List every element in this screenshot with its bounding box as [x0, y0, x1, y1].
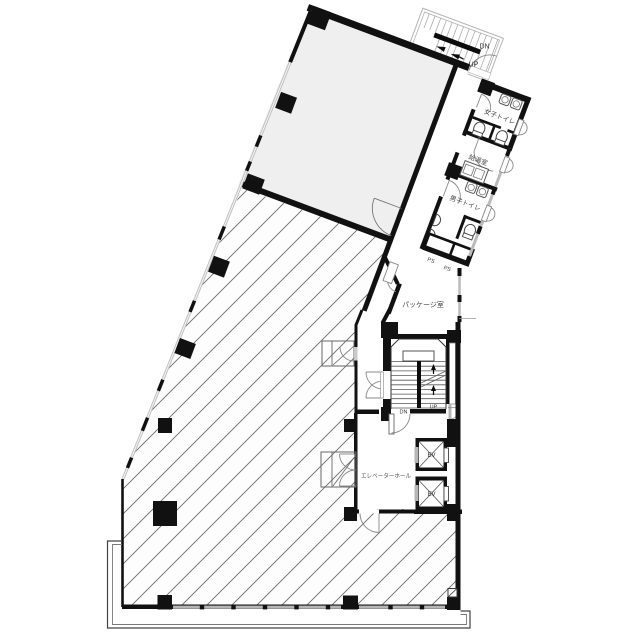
- svg-text:EV: EV: [427, 492, 435, 498]
- svg-text:DN: DN: [400, 410, 408, 416]
- svg-text:UP: UP: [430, 405, 438, 411]
- svg-text:EV: EV: [427, 453, 435, 459]
- svg-text:パッケージ室: パッケージ室: [402, 300, 444, 309]
- svg-text:DN: DN: [479, 44, 489, 51]
- svg-text:エレベーターホール: エレベーターホール: [361, 472, 411, 480]
- svg-text:UP: UP: [469, 62, 479, 69]
